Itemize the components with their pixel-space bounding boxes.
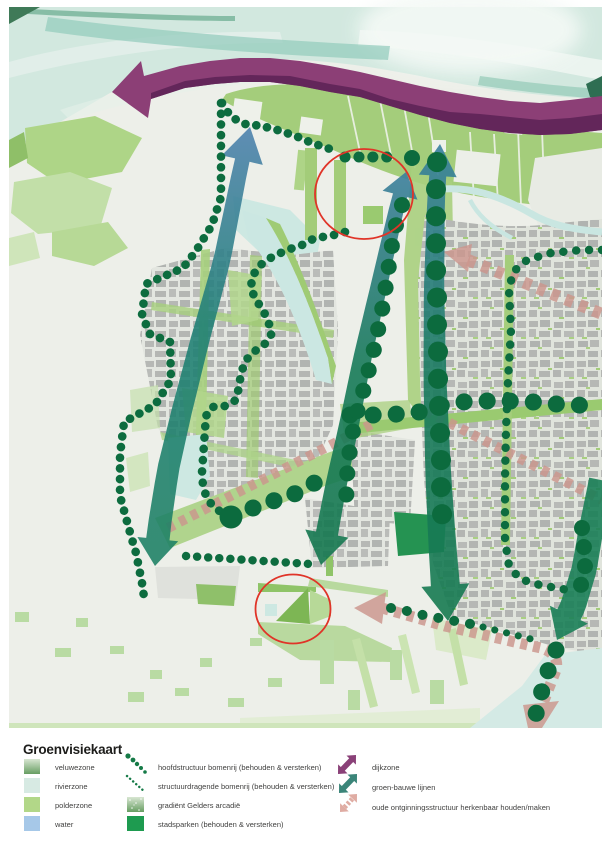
svg-text:structuurdragende bomenrij (be: structuurdragende bomenrij (behouden & v… [158,782,335,791]
svg-text:dijkzone: dijkzone [372,763,400,772]
svg-text:Groenvisiekaart: Groenvisiekaart [23,742,123,757]
svg-text:stadsparken (behouden & verste: stadsparken (behouden & versterken) [158,820,284,829]
svg-text:hoofdstructuur bomenrij (behou: hoofdstructuur bomenrij (behouden & vers… [158,763,322,772]
svg-text:polderzone: polderzone [55,801,92,810]
svg-text:rivierzone: rivierzone [55,782,88,791]
svg-text:oude ontginningsstructuur herk: oude ontginningsstructuur herkenbaar hou… [372,803,550,812]
svg-text:veluwezone: veluwezone [55,763,95,772]
svg-text:water: water [54,820,74,829]
svg-text:gradiënt Gelders arcadië: gradiënt Gelders arcadië [158,801,240,810]
svg-text:groen-bauwe lijnen: groen-bauwe lijnen [372,783,435,792]
